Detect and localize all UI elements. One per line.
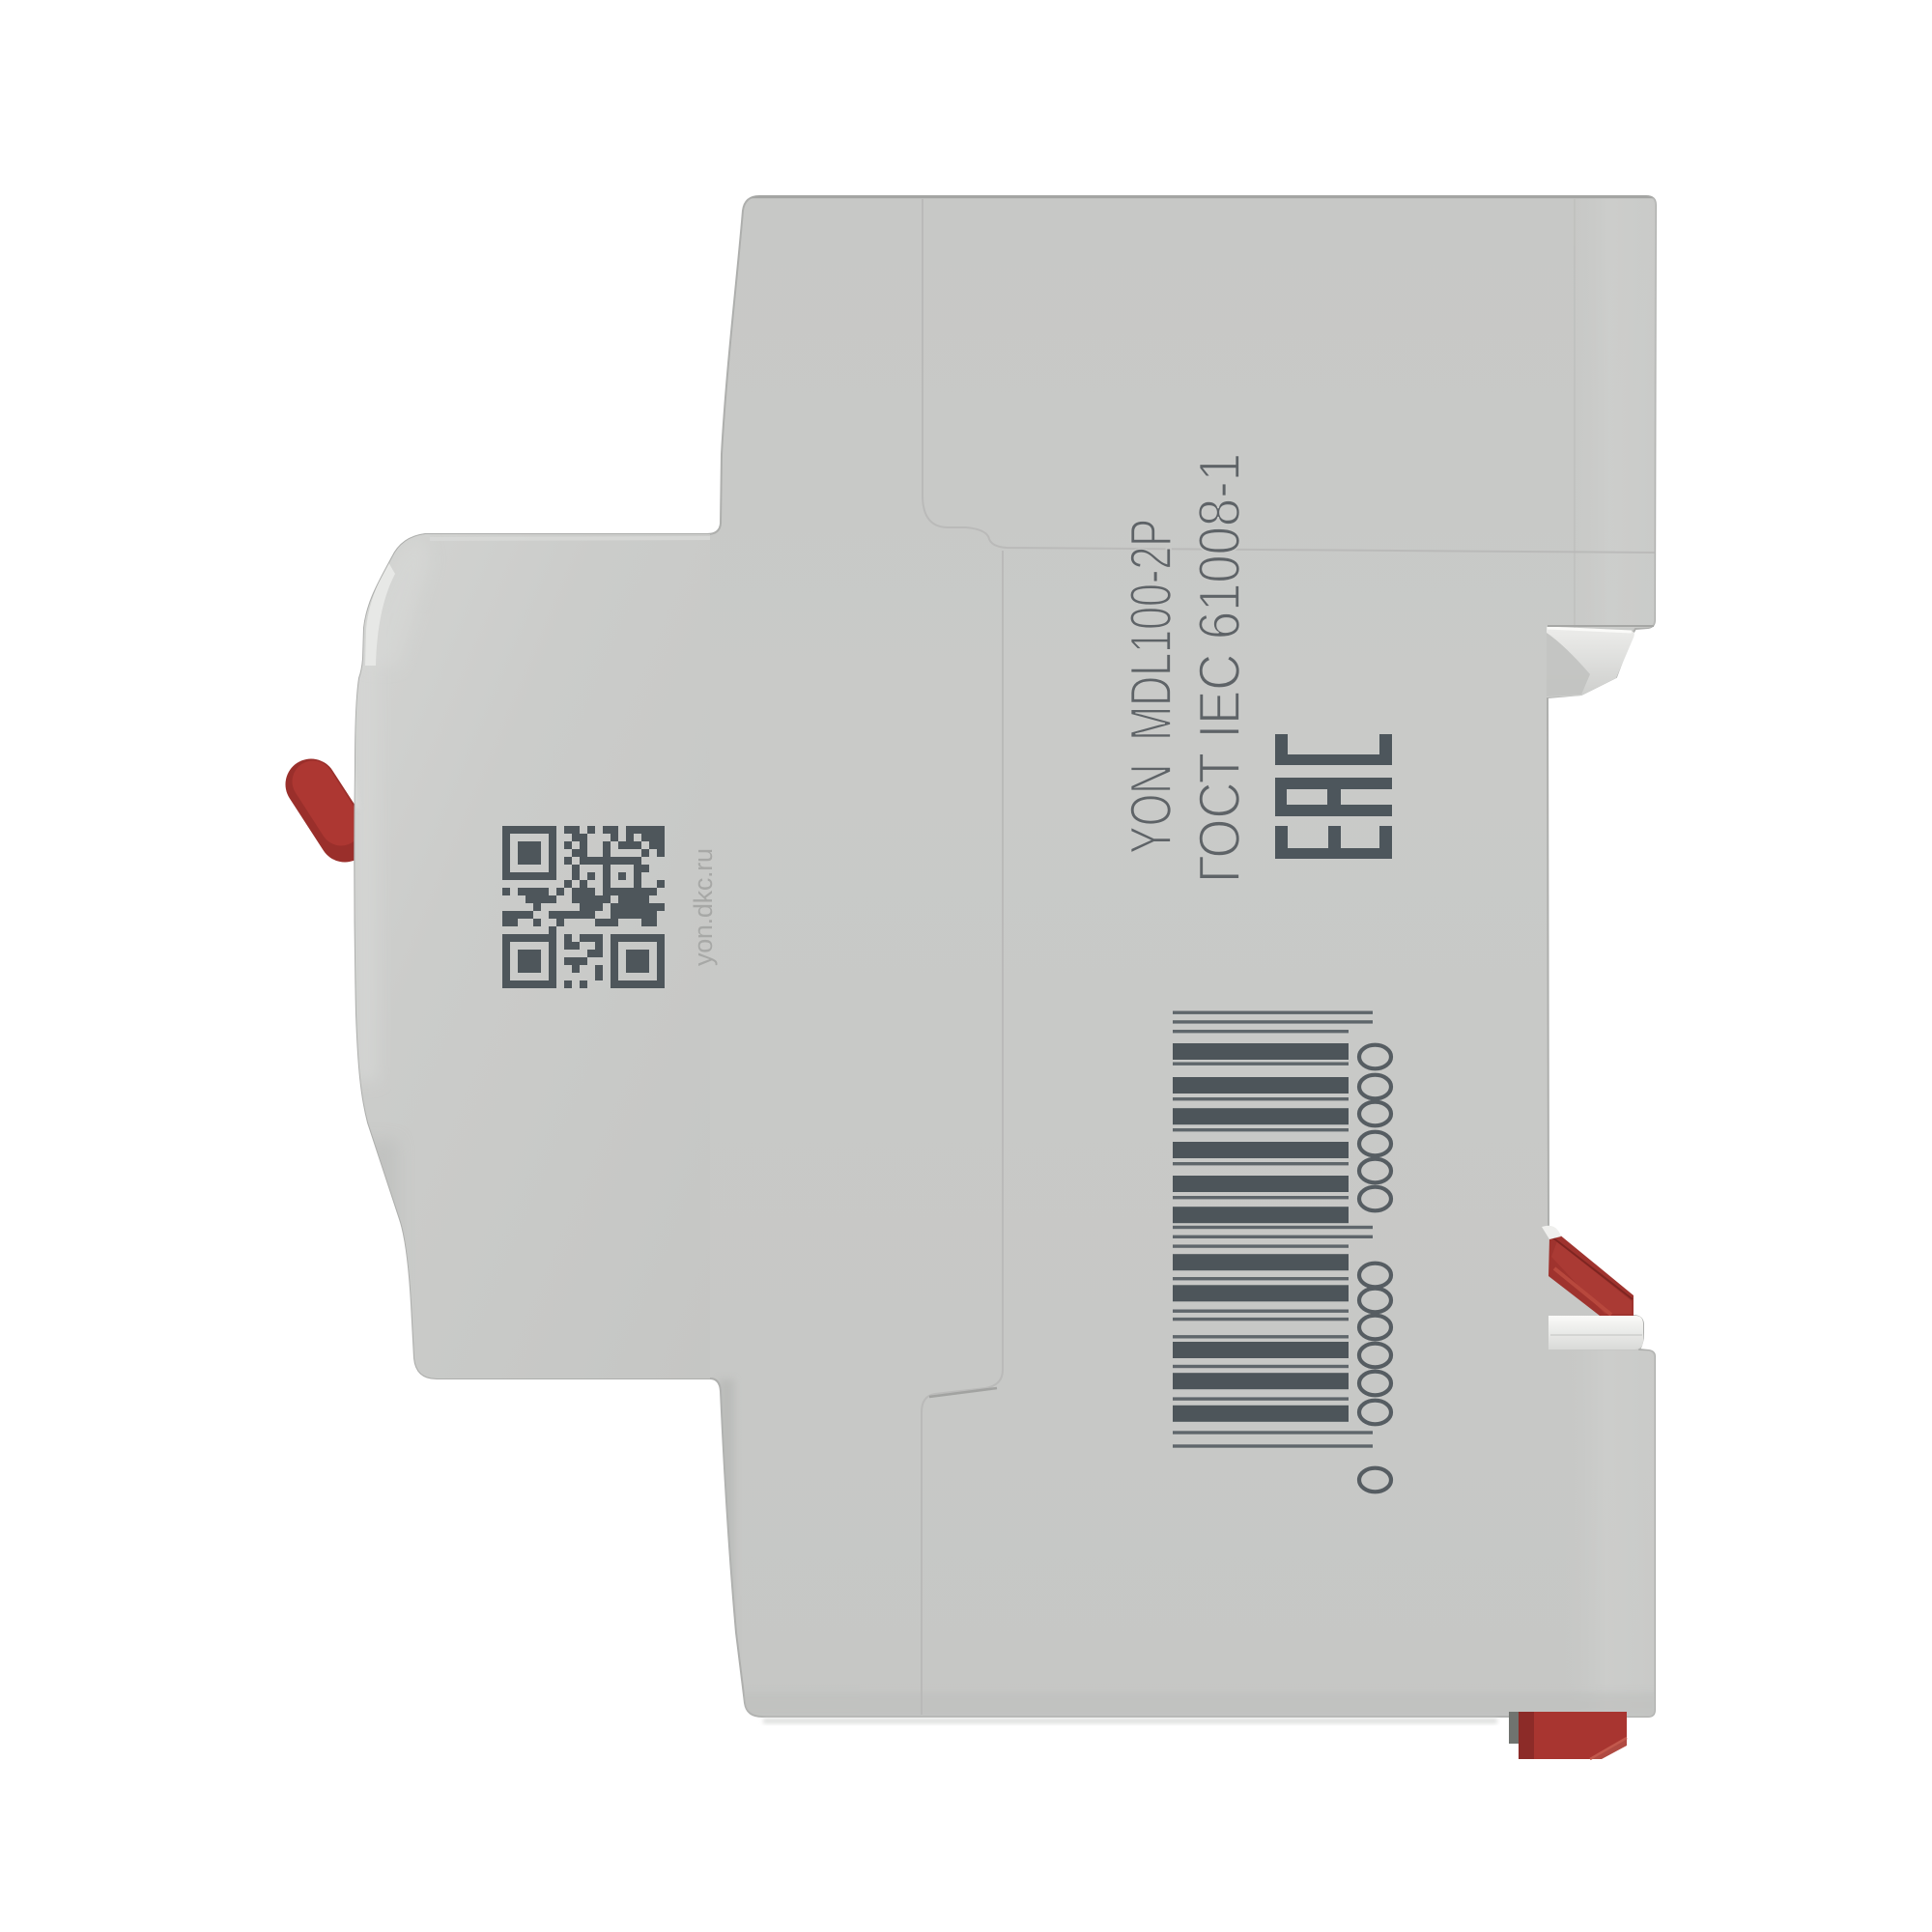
svg-text:YON MDL100-2P: YON MDL100-2P: [1119, 519, 1183, 854]
svg-text:yon.dkc.ru: yon.dkc.ru: [689, 848, 718, 966]
svg-text:ГОСТ IEC 61008-1: ГОСТ IEC 61008-1: [1187, 453, 1252, 883]
